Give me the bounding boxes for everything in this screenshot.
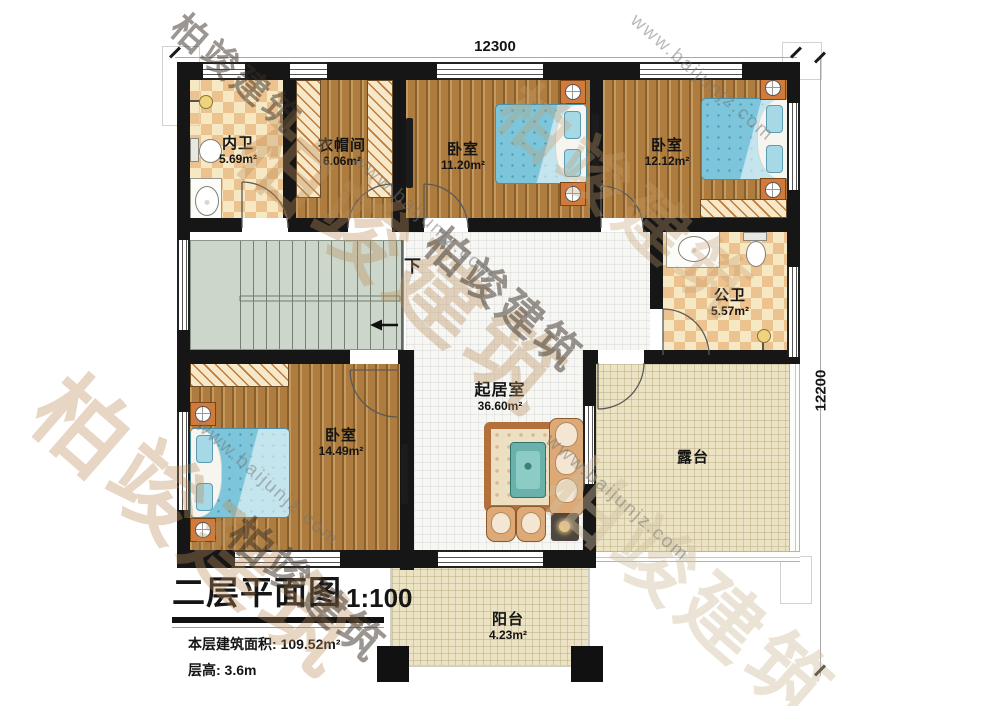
room-name: 卧室 [296,428,386,445]
room-label-bedroom1: 卧室 11.20m² [418,142,508,172]
room-name: 卧室 [418,142,508,159]
room-area: 4.23m² [465,629,551,642]
room-name: 起居室 [455,382,545,400]
room-label-living: 起居室 36.60m² [455,382,545,413]
plan-title: 二层平面图 [172,566,342,614]
stair-direction-arrowhead [370,320,382,331]
room-name: 公卫 [688,288,772,305]
title-block: 二层平面图 1:100 本层建筑面积: 109.52m² 层高: 3.6m [172,566,413,680]
door-arc [242,182,288,228]
room-label-yimaojian: 衣帽间 6.06m² [300,138,384,168]
room-label-balcony: 阳台 4.23m² [465,612,551,642]
door-arc [598,363,644,409]
room-label-bedroom3: 卧室 14.49m² [296,428,386,458]
door-arc [424,184,468,228]
title-underline [172,617,384,623]
room-label-neiwei: 内卫 5.69m² [196,136,280,166]
door-arc [601,186,643,228]
floor-area-note: 本层建筑面积: 109.52m² [188,634,413,654]
room-label-terrace: 露台 [653,450,733,467]
room-name: 露台 [653,450,733,467]
room-name: 阳台 [465,612,551,629]
dimension-line-top [175,57,797,58]
room-area: 36.60m² [455,400,545,413]
title-underline-thin [172,627,384,628]
stair-handrail [240,296,400,301]
dimension-right-value: 12200 [813,362,830,420]
room-area: 11.20m² [418,159,508,172]
door-swings-layer [0,0,1000,706]
room-name: 衣帽间 [300,138,384,155]
room-area: 5.57m² [688,305,772,318]
plan-scale: 1:100 [346,583,413,614]
room-name: 内卫 [196,136,280,153]
room-area: 14.49m² [296,445,386,458]
room-area: 5.69m² [196,153,280,166]
door-arc [348,184,392,228]
room-name: 卧室 [622,138,712,155]
door-arc [350,370,397,417]
room-area: 12.12m² [622,155,712,168]
dimension-top-value: 12300 [450,38,540,55]
stair-down-label: 下 [404,252,421,277]
room-label-bedroom2: 卧室 12.12m² [622,138,712,168]
floor-height-note: 层高: 3.6m [188,660,413,680]
room-area: 6.06m² [300,155,384,168]
floor-plan-sheet: 内卫 5.69m² 衣帽间 6.06m² 卧室 11.20m² 卧室 12.12… [0,0,1000,706]
room-label-gongwei: 公卫 5.57m² [688,288,772,318]
